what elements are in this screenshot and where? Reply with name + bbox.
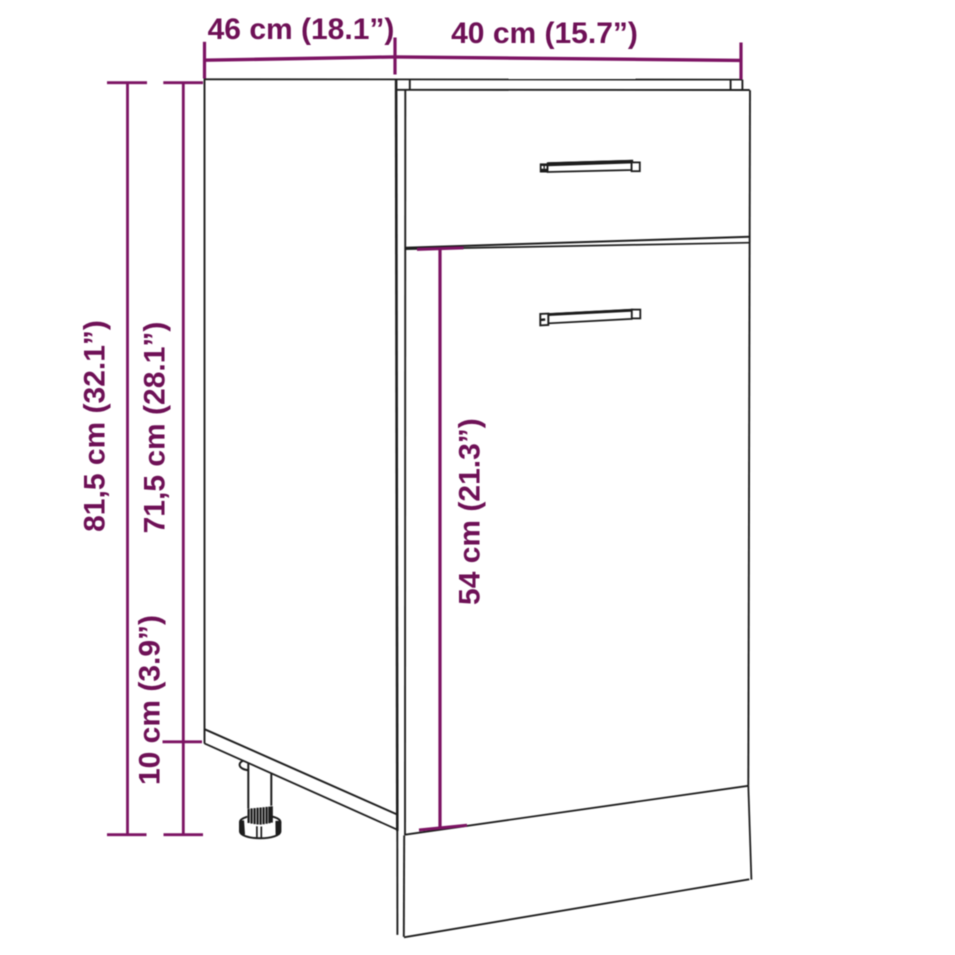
- svg-text:10 cm (3.9”): 10 cm (3.9”): [133, 615, 166, 785]
- svg-text:54 cm (21.3”): 54 cm (21.3”): [453, 418, 486, 605]
- svg-text:46 cm (18.1”): 46 cm (18.1”): [208, 13, 395, 46]
- svg-text:81,5 cm (32.1”): 81,5 cm (32.1”): [79, 320, 112, 532]
- svg-text:40 cm (15.7”): 40 cm (15.7”): [451, 17, 638, 50]
- svg-text:71,5 cm (28.1”): 71,5 cm (28.1”): [139, 322, 172, 534]
